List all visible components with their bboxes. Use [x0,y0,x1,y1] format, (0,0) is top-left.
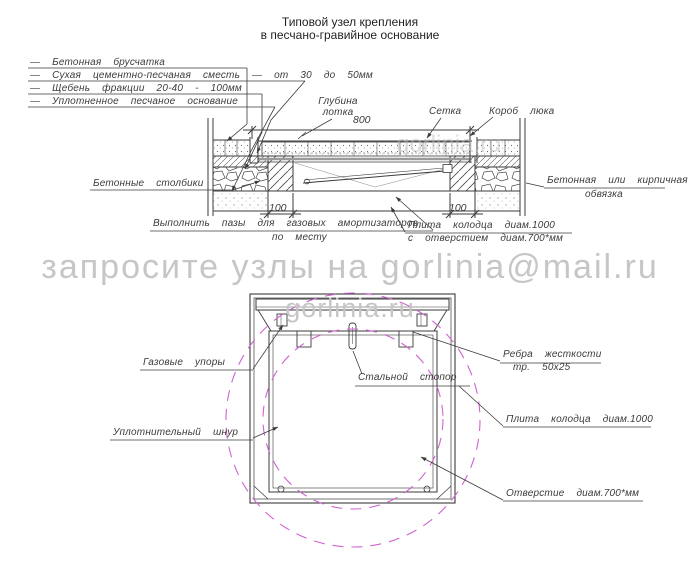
label-hatch-box: Короб люка [489,106,554,118]
concrete-pillar-left [268,156,293,191]
gas-strut [443,165,452,173]
label-grooves-line1: Выполнить пазы для газовых амортизаторов [153,218,418,230]
label-gas-struts: Газовые упоры [143,357,225,369]
label-plan-slab: Плита колодца диам.1000 [506,414,653,426]
label-ribs-line2: тр. 50х25 [513,362,570,374]
page-title-line1: Типовой узел крепления [0,15,700,29]
label-grooves-line2: по месту [272,232,327,244]
watermark-email: запросите узлы на gorlinia@mail.ru [0,248,700,287]
technical-drawing-page: Типовой узел крепления в песчано-гравийн… [0,0,700,561]
dimension-100-right-value: 100 [449,202,467,214]
rib-right [399,331,413,347]
label-frame-line2: обвязка [585,189,623,201]
legend-item-paving: — Бетонная брусчатка [30,57,165,69]
label-plan-hole: Отверстие диам.700*мм [506,488,639,500]
legend-item-gravel: — Щебень фракции 20-40 - 100мм [30,83,242,95]
label-ribs-line1: Ребра жесткости [503,349,601,361]
watermark-site-faint: gorlinia.ru [396,131,501,159]
label-steel-stopper: Стальной стопор [358,372,457,384]
rib-left [297,331,311,347]
well-slab [268,191,475,211]
label-slab-line2: с отверстием диам.700*мм [408,233,563,245]
page-title-line2: в песчано-гравийное основание [0,28,700,42]
label-slab-line1: Плита колодца диам.1000 [408,220,555,232]
legend-item-mix: — Сухая цементно-песчаная сместь — от 30… [30,70,373,82]
label-mesh: Сетка [429,106,461,118]
label-sealing-cord: Уплотнительный шнур [113,427,238,439]
label-concrete-pillars: Бетонные столбики [93,178,204,190]
legend-item-sand: — Уплотненное песчаное основание [30,96,238,108]
dimension-100-left-value: 100 [269,202,287,214]
concrete-pillar-right [450,156,475,191]
dimension-800-value: 800 [353,114,371,126]
label-frame-line1: Бетонная или кирпичная [547,175,688,187]
watermark-site: gorlinia.ru [0,293,700,324]
plan-drawing [226,293,480,547]
